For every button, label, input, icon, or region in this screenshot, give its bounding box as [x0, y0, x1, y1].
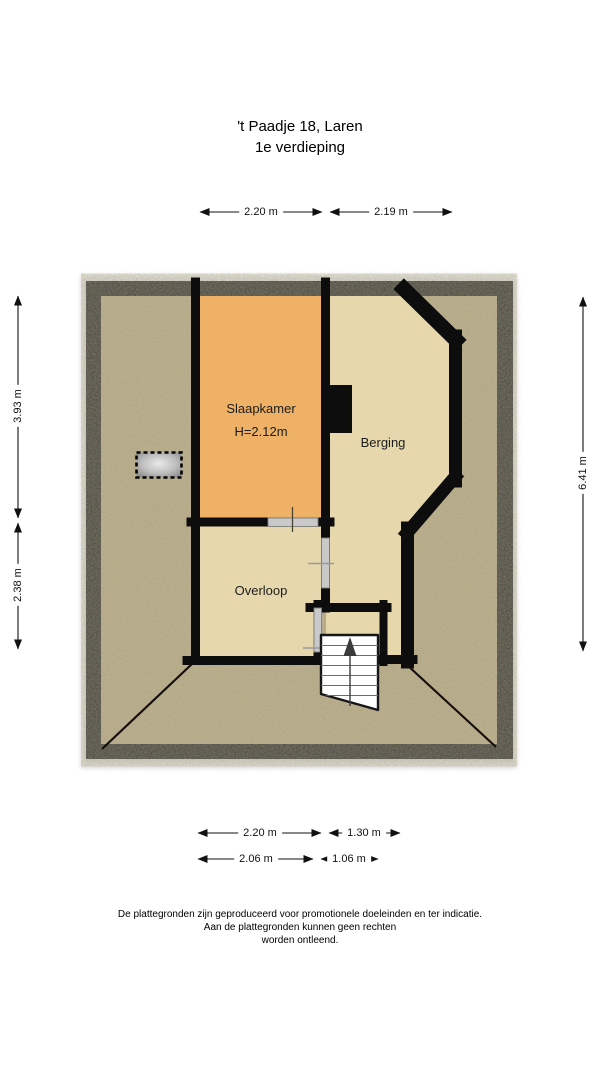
slaapkamer-height: H=2.12m [226, 420, 295, 443]
dim-right-1: 6.41 m [577, 452, 589, 494]
dim-bottom-2b: 1.06 m [327, 853, 371, 865]
skylight [137, 453, 182, 478]
disclaimer-line-2: Aan de plattegronden kunnen geen rechten [0, 921, 600, 934]
disclaimer-line-1: De plattegronden zijn geproduceerd voor … [0, 908, 600, 921]
floorplan-graphic [0, 0, 600, 1066]
disclaimer: De plattegronden zijn geproduceerd voor … [0, 908, 600, 947]
slaapkamer-label: Slaapkamer H=2.12m [226, 397, 295, 443]
dim-bottom-1b: 1.30 m [342, 827, 386, 839]
dim-bottom-2a: 2.06 m [234, 853, 278, 865]
dim-left-2: 2.38 m [12, 564, 24, 606]
dim-top-1: 2.20 m [239, 206, 283, 218]
dim-top-2: 2.19 m [369, 206, 413, 218]
berging-label: Berging [361, 431, 406, 454]
floor-plan [86, 281, 513, 759]
floorplan-page: 't Paadje 18, Laren 1e verdieping [0, 0, 600, 1066]
overloop-label: Overloop [235, 579, 288, 602]
dim-bottom-1a: 2.20 m [238, 827, 282, 839]
disclaimer-line-3: worden ontleend. [0, 934, 600, 947]
slaapkamer-name: Slaapkamer [226, 397, 295, 420]
dim-left-1: 3.93 m [12, 385, 24, 427]
